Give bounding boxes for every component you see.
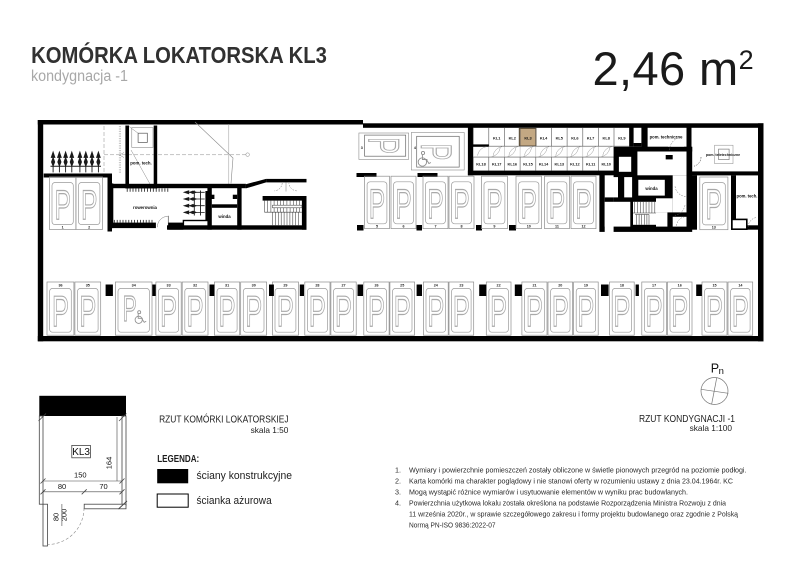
svg-text:P: P: [613, 287, 630, 336]
svg-text:KL14: KL14: [539, 162, 549, 167]
svg-text:P: P: [526, 287, 543, 336]
svg-text:RZUT KOMÓRKI LOKATORSKIEJ: RZUT KOMÓRKI LOKATORSKIEJ: [159, 412, 289, 425]
svg-text:KL8: KL8: [603, 136, 611, 141]
svg-text:Karta komórki ma charakter pog: Karta komórki ma charakter poglądowy i n…: [409, 477, 733, 486]
svg-text:P: P: [245, 287, 262, 336]
svg-text:P: P: [335, 287, 352, 336]
svg-text:P: P: [427, 181, 443, 227]
svg-text:KL18: KL18: [476, 162, 486, 167]
svg-text:KL12: KL12: [570, 162, 580, 167]
svg-text:KL17: KL17: [492, 162, 502, 167]
svg-text:KL5: KL5: [556, 136, 564, 141]
svg-text:P: P: [549, 181, 565, 227]
svg-text:P: P: [490, 287, 507, 336]
svg-text:pom. tech.: pom. tech.: [737, 194, 758, 199]
svg-text:P: P: [123, 289, 137, 329]
svg-text:P: P: [55, 182, 71, 228]
svg-text:P: P: [453, 287, 470, 336]
svg-text:164: 164: [105, 457, 114, 470]
svg-text:pom. teletechniczne: pom. teletechniczne: [706, 153, 740, 157]
svg-text:1.: 1.: [395, 466, 401, 475]
svg-text:P: P: [671, 287, 688, 336]
svg-text:pom. techniczne: pom. techniczne: [650, 135, 683, 140]
svg-text:P: P: [646, 287, 663, 336]
svg-text:KL3: KL3: [72, 447, 90, 458]
svg-text:P: P: [521, 181, 537, 227]
svg-text:P: P: [486, 181, 502, 227]
svg-text:ścianka ażurowa: ścianka ażurowa: [197, 495, 272, 507]
svg-text:pom. tech.: pom. tech.: [130, 161, 152, 166]
svg-text:P: P: [453, 181, 469, 227]
svg-text:P: P: [359, 137, 407, 154]
svg-text:KOMÓRKA LOKATORSKA KL3: KOMÓRKA LOKATORSKA KL3: [31, 41, 327, 68]
svg-text:3: 3: [361, 146, 363, 150]
svg-text:KL2: KL2: [509, 136, 517, 141]
svg-text:P: P: [52, 287, 69, 336]
svg-text:P: P: [79, 287, 96, 336]
svg-text:3.: 3.: [395, 488, 401, 497]
svg-text:200: 200: [60, 509, 69, 522]
svg-text:KL7: KL7: [587, 136, 594, 141]
svg-text:kondygnacja -1: kondygnacja -1: [31, 68, 128, 85]
svg-text:skala 1:100: skala 1:100: [690, 423, 733, 433]
svg-text:LEGENDA:: LEGENDA:: [157, 454, 199, 465]
svg-text:KL11: KL11: [586, 162, 596, 167]
svg-text:80: 80: [58, 482, 66, 491]
svg-text:P: P: [412, 144, 460, 161]
svg-text:Powierzchnia użytkowa lokalu z: Powierzchnia użytkowa lokalu została okr…: [409, 499, 726, 508]
svg-text:P: P: [552, 287, 569, 336]
svg-text:2,46 m2: 2,46 m2: [592, 42, 754, 95]
svg-text:KL6: KL6: [571, 136, 579, 141]
svg-text:P: P: [706, 287, 723, 336]
svg-text:2.: 2.: [395, 477, 401, 486]
svg-text:KL3: KL3: [524, 136, 532, 141]
svg-text:P: P: [309, 287, 326, 336]
svg-text:KL13: KL13: [555, 162, 565, 167]
svg-text:P: P: [395, 181, 411, 227]
svg-text:P: P: [427, 287, 444, 336]
svg-text:skala 1:50: skala 1:50: [251, 425, 289, 435]
svg-text:ściany konstrukcyjne: ściany konstrukcyjne: [197, 470, 293, 482]
svg-text:KL4: KL4: [540, 136, 548, 141]
svg-text:11 września 2020r., w sprawie: 11 września 2020r., w sprawie szczegółow…: [409, 510, 738, 519]
svg-text:P: P: [369, 181, 385, 227]
svg-text:P: P: [368, 287, 385, 336]
svg-text:150: 150: [74, 471, 87, 480]
svg-text:4.: 4.: [395, 499, 401, 508]
svg-text:P: P: [577, 287, 594, 336]
svg-text:P: P: [277, 287, 294, 336]
svg-text:P: P: [394, 287, 411, 336]
svg-text:rowerownia: rowerownia: [133, 205, 157, 210]
svg-text:winda: winda: [217, 214, 231, 219]
svg-text:n: n: [719, 366, 724, 377]
svg-text:Mogą wystąpić różnice wymiarów: Mogą wystąpić różnice wymiarów i usytuow…: [409, 488, 688, 497]
svg-text:P: P: [160, 287, 177, 336]
svg-text:KL16: KL16: [508, 162, 518, 167]
svg-text:KL1: KL1: [493, 136, 501, 141]
svg-text:P: P: [732, 287, 749, 336]
svg-text:KL9: KL9: [618, 136, 626, 141]
svg-text:winda: winda: [644, 186, 658, 191]
svg-text:P: P: [187, 287, 204, 336]
svg-text:P: P: [219, 287, 236, 336]
svg-text:KL15: KL15: [523, 162, 533, 167]
svg-text:P: P: [81, 182, 97, 228]
svg-text:Normą PN-ISO 9836:2022-07: Normą PN-ISO 9836:2022-07: [409, 521, 496, 530]
svg-text:P: P: [575, 181, 591, 227]
svg-text:70: 70: [99, 482, 107, 491]
svg-text:KL10: KL10: [601, 162, 611, 167]
svg-text:Wymiary i powierzchnie pomiesz: Wymiary i powierzchnie pomieszczeń zosta…: [409, 466, 747, 475]
svg-text:P: P: [706, 182, 722, 228]
